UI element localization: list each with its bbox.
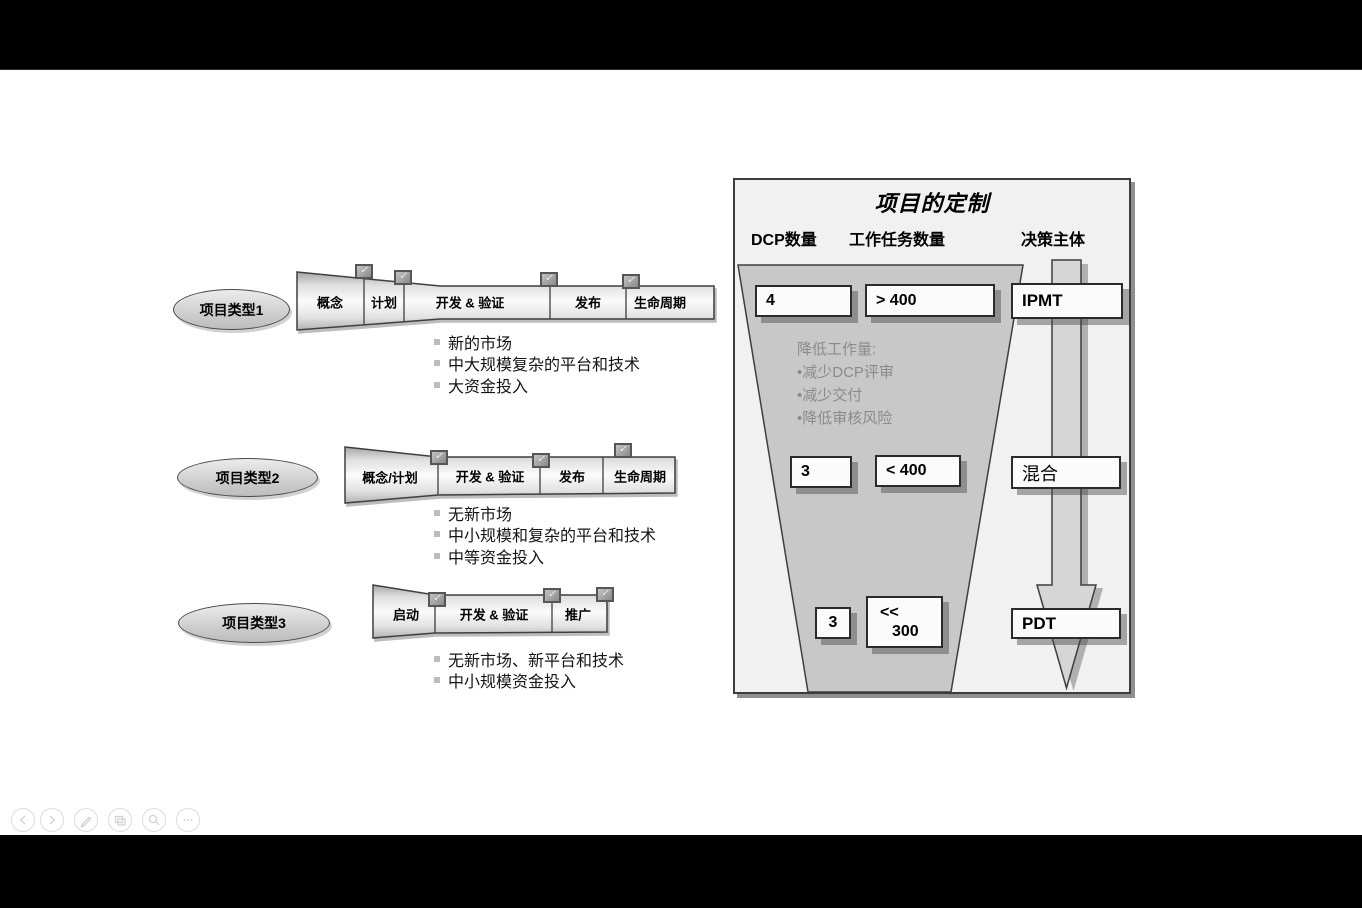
project-type-3-label: 项目类型3 (222, 613, 286, 633)
note-item: •减少交付 (797, 384, 894, 407)
project-type-2-bullets: 无新市场 中小规模和复杂的平台和技术 中等资金投入 (434, 502, 656, 567)
bullet-square-icon (434, 656, 440, 662)
more-options-button[interactable] (176, 808, 200, 832)
project-type-1-label: 项目类型1 (200, 300, 264, 320)
dcp-count-box-2: 3 (790, 456, 852, 488)
prev-slide-button[interactable] (11, 808, 35, 832)
project-type-2-label: 项目类型2 (216, 468, 280, 488)
next-slide-button[interactable] (40, 808, 64, 832)
stage-label: 推广 (565, 605, 591, 624)
stage-label: 概念 (317, 293, 343, 312)
dcp-check-icon: ✓ (355, 264, 373, 279)
workload-note: 降低工作量: •减少DCP评审 •减少交付 •降低审核风险 (797, 338, 894, 430)
stage-label: 生命周期 (634, 293, 686, 312)
pen-annotate-button[interactable] (74, 808, 98, 832)
slide-canvas: 项目类型1 概念 计划 开发 & 验证 发布 生命周期 ✓ ✓ ✓ ✓ 新的市场… (0, 70, 1362, 835)
dcp-check-icon: ✓ (540, 272, 558, 287)
bullet-square-icon (434, 360, 440, 366)
project-type-1-bullets: 新的市场 中大规模复杂的平台和技术 大资金投入 (434, 331, 640, 396)
letterbox-bottom (0, 835, 1362, 908)
workload-box-2: < 400 (875, 455, 961, 487)
project-type-2-ellipse: 项目类型2 (177, 458, 318, 497)
stage-label: 开发 & 验证 (460, 605, 529, 624)
bullet-square-icon (434, 382, 440, 388)
chevron-right-icon (44, 812, 60, 828)
magnifier-icon (146, 812, 162, 828)
decision-box-1: IPMT (1011, 283, 1123, 319)
stage-label: 开发 & 验证 (456, 467, 525, 486)
stage-label: 开发 & 验证 (436, 293, 505, 312)
bullet-square-icon (434, 510, 440, 516)
note-item: •减少DCP评审 (797, 361, 894, 384)
decision-box-3: PDT (1011, 608, 1121, 639)
decision-box-2: 混合 (1011, 456, 1121, 489)
chevron-left-icon (15, 812, 31, 828)
bullet-square-icon (434, 677, 440, 683)
dcp-check-icon: ✓ (622, 274, 640, 289)
stage-label: 概念/计划 (362, 468, 418, 487)
stage-label: 发布 (575, 293, 601, 312)
letterbox-top (0, 0, 1362, 70)
ellipsis-icon (180, 812, 196, 828)
zoom-button[interactable] (142, 808, 166, 832)
dcp-check-icon: ✓ (532, 453, 550, 468)
bullet-square-icon (434, 531, 440, 537)
note-item: •降低审核风险 (797, 407, 894, 430)
slide-thumbnails-button[interactable] (108, 808, 132, 832)
stage-label: 启动 (393, 605, 419, 624)
project-type-3-bullets: 无新市场、新平台和技术 中小规模资金投入 (434, 648, 624, 691)
workload-box-3: << 300 (866, 596, 943, 648)
dcp-check-icon: ✓ (430, 450, 448, 465)
dcp-check-icon: ✓ (543, 588, 561, 603)
dcp-check-icon: ✓ (596, 587, 614, 602)
project-type-3-ellipse: 项目类型3 (178, 603, 330, 643)
stage-label: 计划 (371, 293, 397, 312)
stage-label: 发布 (559, 467, 585, 486)
dcp-check-icon: ✓ (428, 592, 446, 607)
bullet-square-icon (434, 339, 440, 345)
dcp-count-box-1: 4 (755, 285, 852, 317)
bullet-square-icon (434, 553, 440, 559)
workload-box-1: > 400 (865, 284, 995, 317)
project-type-1-ellipse: 项目类型1 (173, 289, 290, 330)
dcp-check-icon: ✓ (614, 443, 632, 458)
stage-label: 生命周期 (614, 467, 666, 486)
presentation-screen: 项目类型1 概念 计划 开发 & 验证 发布 生命周期 ✓ ✓ ✓ ✓ 新的市场… (0, 0, 1362, 908)
note-title: 降低工作量: (797, 338, 894, 361)
pen-icon (78, 812, 94, 828)
dcp-count-box-3: 3 (815, 607, 851, 639)
dcp-check-icon: ✓ (394, 270, 412, 285)
customization-panel: 项目的定制 DCP数量 工作任务数量 决策主体 降低工作量: •减少DCP评审 … (733, 178, 1131, 694)
slides-icon (112, 812, 128, 828)
